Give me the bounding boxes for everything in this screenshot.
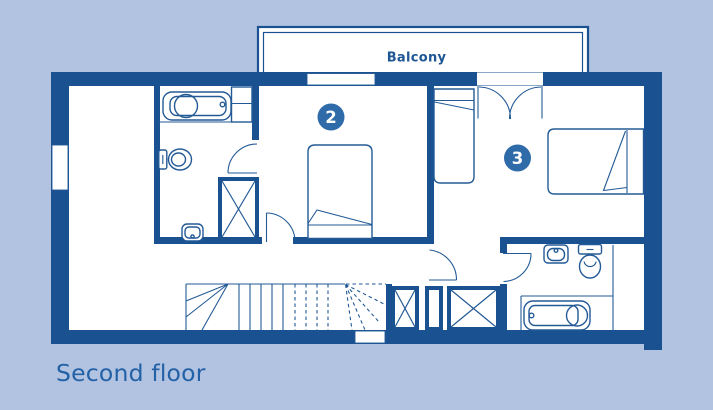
window-icon — [307, 74, 375, 86]
floor-plan-drawing: Balcony — [0, 0, 713, 410]
double-bed-icon — [548, 129, 644, 194]
wardrobe-x-icon — [218, 177, 259, 241]
wardrobe-x-icon — [391, 286, 419, 331]
closet-icon — [425, 286, 443, 331]
room-2-badge: 2 — [318, 104, 345, 131]
floor-plan-screenshot: Balcony — [0, 0, 713, 410]
balcony-label: Balcony — [387, 51, 447, 66]
window-icon — [52, 145, 68, 190]
balcony-door-opening — [477, 73, 543, 86]
single-bed-icon — [434, 89, 474, 183]
toilet-icon — [159, 149, 192, 170]
window-icon — [355, 331, 385, 343]
room-3-number: 3 — [512, 149, 523, 168]
double-bed-icon — [308, 145, 372, 239]
toilet-icon — [579, 245, 602, 279]
wardrobe-x-icon — [447, 286, 500, 331]
room-2-number: 2 — [325, 108, 336, 127]
room-3-badge: 3 — [504, 145, 531, 172]
floor-label: Second floor — [56, 359, 206, 387]
sink-icon — [544, 245, 568, 263]
sink-icon — [182, 224, 203, 241]
